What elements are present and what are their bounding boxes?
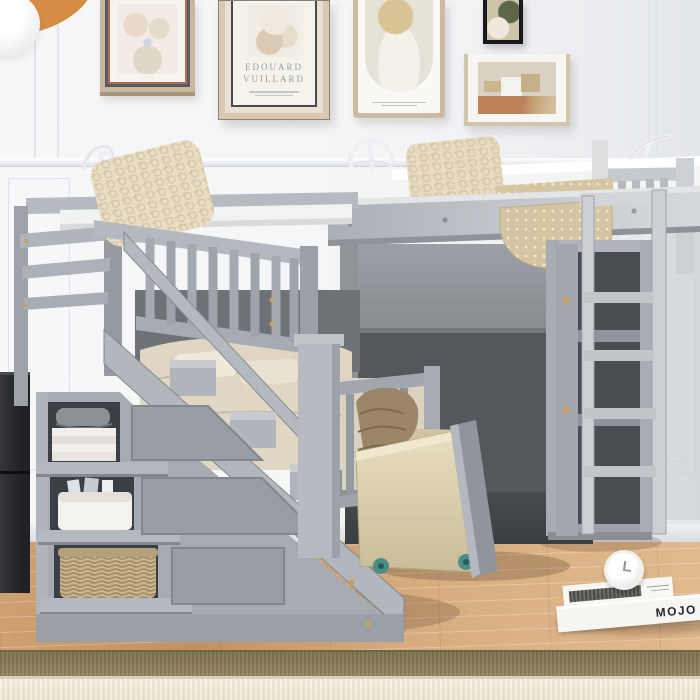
bedroom-photo: EDOUARD VUILLARD [0,0,700,700]
bookshelf-unit [546,240,652,540]
wicker-basket [58,548,158,598]
folded-linens [52,408,116,461]
book-spine-title: MOJO [655,602,697,620]
stair-newel-post [294,334,344,558]
